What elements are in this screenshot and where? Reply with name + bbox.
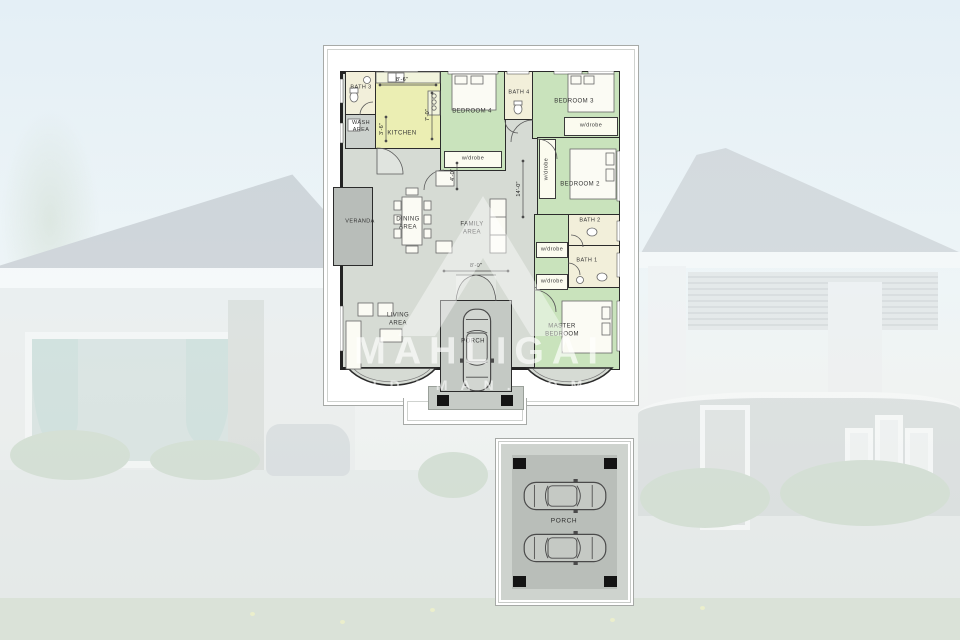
- carport-plan: PORCH: [495, 438, 634, 606]
- carport-label: PORCH: [551, 518, 577, 525]
- carport-column: [604, 458, 617, 469]
- flower: [340, 620, 345, 624]
- room-label-bedroom4: BEDROOM 4: [452, 108, 492, 116]
- room-label-bath3: BATH 3: [350, 85, 371, 92]
- flower: [610, 618, 615, 622]
- room-label-bedroom3: BEDROOM 3: [554, 98, 594, 106]
- dim-hall-door: 4'-0": [450, 169, 456, 181]
- basin-icon: [577, 277, 584, 284]
- room-label-bath2: BATH 2: [579, 218, 600, 225]
- armchair-icon: [358, 303, 373, 316]
- room-label-bedroom2: BEDROOM 2: [560, 181, 600, 189]
- room-label-wash: WASH AREA: [352, 120, 370, 134]
- watermark-logo: [398, 196, 568, 336]
- room-label-kitchen: KITCHEN: [387, 130, 416, 138]
- grass-strip: [0, 598, 960, 640]
- room-label-veranda: VERANDA: [345, 219, 374, 226]
- carport-column: [604, 576, 617, 587]
- dim-kitchen-height: 7'-0": [425, 109, 431, 121]
- toilet-icon: [350, 92, 358, 102]
- gazebo-roof: [638, 148, 960, 263]
- flower: [430, 608, 435, 612]
- shrub: [418, 452, 488, 498]
- carport-column: [513, 576, 526, 587]
- dim-hallway-length: 14'-0": [516, 181, 522, 196]
- house-fascia-left: [0, 268, 355, 290]
- shrub: [10, 430, 130, 480]
- carport-car-icon: [521, 479, 609, 513]
- toilet-icon: [514, 104, 522, 114]
- wardrobe-label: w/drobe: [580, 123, 602, 130]
- shrub: [150, 440, 260, 480]
- basin-icon: [364, 77, 371, 84]
- screenshot-root: BATH 3 WASH AREA KITCHEN BEDROOM 4 BATH …: [0, 0, 960, 640]
- room-label-bath1: BATH 1: [576, 258, 597, 265]
- watermark-subtitle: IDAMAN.COM: [373, 377, 596, 393]
- flower: [700, 606, 705, 610]
- carport-column: [513, 458, 526, 469]
- flower: [250, 612, 255, 616]
- kitchen-counter-icon: [376, 72, 440, 83]
- toilet-icon: [597, 273, 607, 281]
- wardrobe-label: w/drobe: [544, 158, 551, 180]
- dim-kitchen-width: 8'-6": [396, 77, 408, 83]
- dim-wash-width: 3'-6": [379, 123, 385, 135]
- watermark-title: MAHLIGAI: [354, 331, 606, 374]
- gazebo-louver-panel: [688, 272, 938, 330]
- wardrobe-label: w/drobe: [462, 156, 484, 163]
- room-label-bath4: BATH 4: [508, 90, 529, 97]
- toilet-icon: [587, 228, 597, 236]
- shrub: [780, 460, 950, 526]
- parked-car: [266, 424, 350, 476]
- curtain-right: [186, 339, 232, 447]
- carport-car-icon: [521, 531, 609, 565]
- shrub: [640, 468, 770, 528]
- gazebo-fascia: [638, 252, 960, 268]
